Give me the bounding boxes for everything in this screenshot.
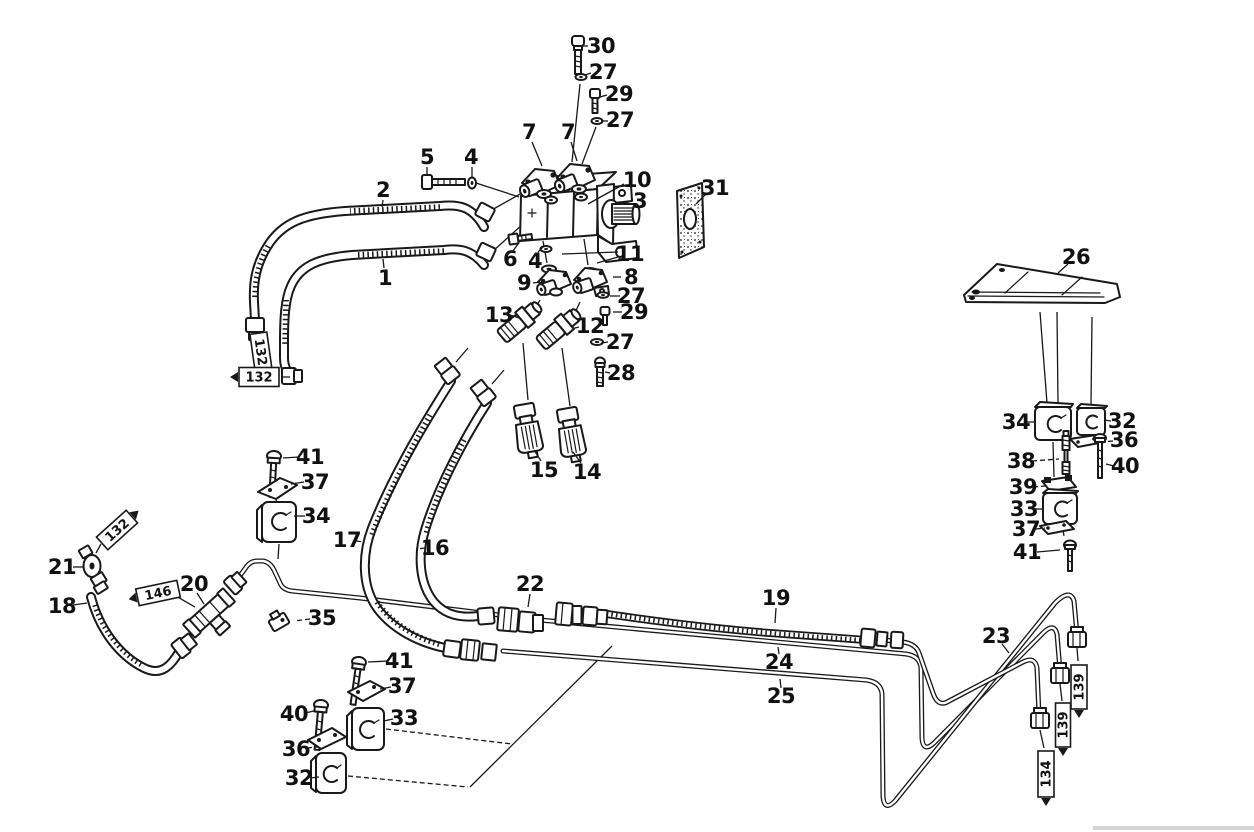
callout-38: 38 — [1007, 449, 1035, 473]
port-flange-9 — [536, 270, 571, 297]
callout-33: 33 — [390, 706, 418, 730]
callout-6: 6 — [503, 247, 517, 271]
clamp-plate-36 — [308, 728, 346, 749]
callout-22: 22 — [516, 572, 544, 596]
callout-35: 35 — [308, 606, 336, 630]
callout-31: 31 — [701, 176, 729, 200]
clamp-block-32 — [311, 753, 346, 793]
callout-23: 23 — [982, 624, 1010, 648]
callout-16: 16 — [421, 536, 449, 560]
callout-7: 7 — [561, 120, 575, 144]
callout-2: 2 — [376, 178, 390, 202]
callout-41: 41 — [1013, 540, 1041, 564]
union-fitting-22 — [497, 607, 543, 632]
callout-37: 37 — [388, 674, 416, 698]
washer-4 — [541, 246, 552, 252]
connector-15 — [511, 402, 545, 460]
callout-27: 27 — [606, 330, 634, 354]
callout-25: 25 — [767, 684, 795, 708]
bolt-29 — [590, 89, 600, 113]
callout-32: 32 — [285, 766, 313, 790]
part-tag-134: 134 — [1038, 751, 1055, 806]
part-tag-132: 132 — [250, 332, 272, 372]
callout-18: 18 — [48, 594, 76, 618]
parts-diagram: 3027292777542103311649118272913122728151… — [0, 0, 1254, 832]
callout-3: 3 — [633, 189, 647, 213]
part-tag-146: 146 — [127, 580, 180, 607]
clamp-block-32 — [1077, 404, 1107, 435]
callout-12: 12 — [576, 314, 604, 338]
part-tag-132: 132 — [96, 504, 144, 549]
callout-28: 28 — [607, 361, 635, 385]
washer-27 — [576, 74, 587, 80]
callout-leader — [775, 608, 776, 623]
part-tag-132: 132 — [230, 368, 279, 387]
washer-27 — [598, 292, 609, 298]
callout-24: 24 — [765, 650, 793, 674]
callout-4: 4 — [528, 249, 542, 273]
part-tag-139: 139 — [1056, 703, 1072, 756]
callout-27: 27 — [589, 60, 617, 84]
callout-37: 37 — [301, 470, 329, 494]
connector-14 — [554, 406, 588, 464]
callout-4: 4 — [464, 145, 478, 169]
callout-29: 29 — [620, 300, 648, 324]
callout-11: 11 — [616, 242, 644, 266]
union-fitting-19 — [555, 602, 607, 625]
callout-21: 21 — [48, 555, 76, 579]
clamp-plate-37 — [258, 478, 297, 499]
scan-artifact — [1093, 826, 1254, 830]
callout-layer: 3027292777542103311649118272913122728151… — [48, 34, 1139, 806]
callout-29: 29 — [605, 82, 633, 106]
banjo-fitting-21 — [79, 545, 111, 594]
callout-30: 30 — [587, 34, 615, 58]
callout-13: 13 — [485, 303, 513, 327]
callout-leader — [1040, 730, 1044, 748]
callout-5: 5 — [420, 145, 434, 169]
callout-36: 36 — [282, 737, 310, 761]
callout-37: 37 — [1012, 517, 1040, 541]
callout-1: 1 — [378, 266, 392, 290]
callout-36: 36 — [1110, 428, 1138, 452]
svg-text:139: 139 — [1073, 673, 1088, 700]
callout-34: 34 — [302, 504, 330, 528]
clamp-block-34 — [257, 502, 296, 542]
callout-26: 26 — [1062, 245, 1090, 269]
callout-41: 41 — [296, 445, 324, 469]
washer-27 — [592, 118, 603, 124]
callout-34: 34 — [1002, 410, 1030, 434]
line-end-nut — [1031, 708, 1049, 728]
parts-diagram-page: 3027292777542103311649118272913122728151… — [0, 0, 1254, 832]
clamp-35 — [266, 608, 290, 632]
bolt-5 — [422, 175, 465, 189]
bolt-30 — [572, 36, 584, 74]
cover-plate-26 — [964, 264, 1120, 303]
part-tag-139: 139 — [1071, 665, 1088, 718]
callout-leader — [96, 544, 101, 553]
callout-7: 7 — [522, 120, 536, 144]
clamp-block-33 — [347, 708, 384, 750]
callout-leader — [1077, 648, 1078, 661]
bolt-41 — [1064, 541, 1076, 572]
bolt-40 — [1094, 434, 1106, 478]
callout-17: 17 — [333, 528, 361, 552]
callout-41: 41 — [385, 649, 413, 673]
callout-19: 19 — [762, 586, 790, 610]
callout-leader — [1032, 459, 1059, 461]
callout-40: 40 — [280, 702, 308, 726]
washer-27 — [591, 339, 603, 345]
hose-18 — [91, 597, 198, 671]
callout-39: 39 — [1009, 475, 1037, 499]
line-end-nut — [1068, 627, 1086, 647]
line-end-nut — [1051, 663, 1069, 683]
svg-text:139: 139 — [1057, 711, 1072, 738]
callout-14: 14 — [573, 460, 601, 484]
callout-40: 40 — [1111, 454, 1139, 478]
washer-4 — [468, 178, 476, 189]
callout-20: 20 — [180, 572, 208, 596]
callout-leader — [532, 142, 542, 166]
bolt-28 — [595, 358, 605, 387]
callout-15: 15 — [530, 458, 558, 482]
callout-leader — [1060, 684, 1062, 701]
clamp-block-33 — [1043, 489, 1078, 524]
callout-9: 9 — [517, 271, 531, 295]
callout-27: 27 — [606, 108, 634, 132]
hose-1 — [282, 242, 496, 384]
svg-text:132: 132 — [245, 371, 272, 386]
stud-38 — [1063, 431, 1070, 474]
svg-text:134: 134 — [1040, 760, 1055, 787]
